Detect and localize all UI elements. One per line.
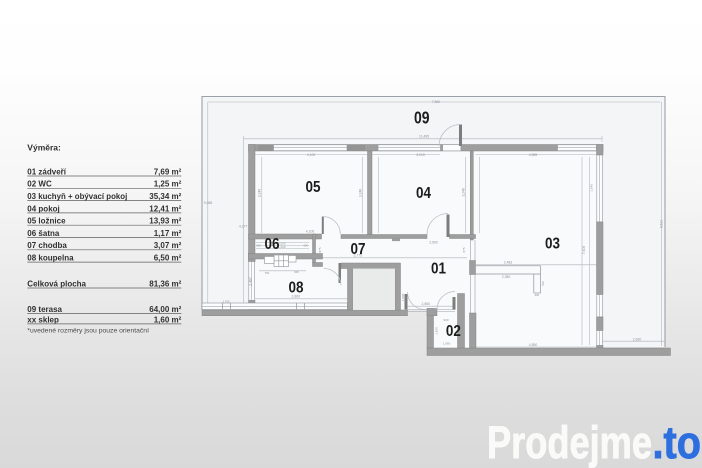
svg-text:2,467: 2,467 [249, 277, 253, 286]
svg-text:13,93 m²: 13,93 m² [149, 217, 181, 226]
svg-text:7,69 m²: 7,69 m² [154, 167, 182, 176]
svg-text:09 terasa: 09 terasa [27, 305, 62, 314]
svg-text:12,41 m²: 12,41 m² [149, 204, 181, 213]
svg-text:2,483: 2,483 [504, 261, 513, 265]
svg-text:1,17 m²: 1,17 m² [154, 229, 182, 238]
svg-text:01: 01 [431, 260, 446, 277]
svg-text:4,855: 4,855 [529, 153, 538, 157]
svg-text:7,560: 7,560 [432, 100, 441, 104]
svg-text:07: 07 [351, 241, 366, 258]
svg-text:9,085: 9,085 [204, 201, 213, 205]
svg-text:3,010: 3,010 [416, 153, 425, 157]
svg-text:02 WC: 02 WC [27, 180, 52, 189]
svg-text:64,00 m²: 64,00 m² [149, 305, 181, 314]
svg-text:2,960: 2,960 [429, 240, 438, 244]
svg-text:4,850: 4,850 [529, 343, 538, 347]
svg-text:875: 875 [318, 247, 322, 252]
svg-text:11,485: 11,485 [419, 135, 429, 139]
svg-text:7,606: 7,606 [582, 246, 586, 255]
svg-text:1,898: 1,898 [401, 293, 405, 301]
svg-text:1,400: 1,400 [435, 327, 439, 335]
svg-text:6,50 m²: 6,50 m² [154, 254, 182, 263]
svg-text:05: 05 [306, 179, 321, 196]
svg-text:600: 600 [303, 243, 308, 247]
svg-text:08: 08 [289, 279, 304, 296]
svg-text:2,630: 2,630 [633, 337, 642, 341]
svg-text:4,277: 4,277 [239, 225, 248, 229]
svg-text:3,246: 3,246 [358, 189, 362, 198]
svg-text:03: 03 [545, 236, 560, 253]
svg-text:81,36 m²: 81,36 m² [149, 279, 181, 288]
svg-text:03 kuchyň + obývací pokoj: 03 kuchyň + obývací pokoj [27, 192, 127, 201]
svg-text:09: 09 [414, 108, 430, 128]
svg-text:*uvedené rozměry jsou pouze or: *uvedené rozměry jsou pouze orientační [27, 328, 149, 335]
svg-text:700: 700 [264, 271, 269, 275]
svg-text:Celková plocha: Celková plocha [27, 279, 86, 288]
svg-text:3,07 m²: 3,07 m² [154, 241, 182, 250]
svg-text:05 ložnice: 05 ložnice [27, 217, 66, 226]
svg-text:06: 06 [265, 236, 280, 253]
svg-text:02: 02 [446, 323, 461, 340]
svg-text:875: 875 [462, 247, 466, 252]
svg-text:Prodejme: Prodejme [487, 417, 652, 468]
svg-text:2,860: 2,860 [422, 302, 431, 306]
svg-text:900: 900 [443, 318, 448, 322]
svg-text:04 pokoj: 04 pokoj [27, 204, 59, 213]
svg-text:2,380: 2,380 [502, 275, 511, 279]
svg-text:07 chodba: 07 chodba [27, 241, 67, 250]
svg-text:35,34 m²: 35,34 m² [149, 192, 181, 201]
svg-text:4,100: 4,100 [306, 229, 315, 233]
svg-text:1,60 m²: 1,60 m² [154, 315, 182, 324]
svg-text:xx sklep: xx sklep [27, 315, 59, 324]
svg-text:3,246: 3,246 [258, 189, 262, 198]
svg-text:500: 500 [256, 243, 261, 247]
svg-text:905: 905 [294, 270, 299, 274]
svg-text:08 koupelna: 08 koupelna [27, 254, 74, 263]
svg-text:4,100: 4,100 [307, 153, 316, 157]
svg-text:1,700: 1,700 [223, 300, 230, 304]
svg-text:06 šatna: 06 šatna [27, 229, 60, 238]
svg-text:1,060: 1,060 [443, 341, 451, 345]
svg-text:500: 500 [541, 281, 545, 286]
svg-text:1,25 m²: 1,25 m² [154, 180, 182, 189]
svg-text:04: 04 [416, 185, 431, 202]
svg-text:01 zádveří: 01 zádveří [27, 167, 66, 176]
svg-text:3,246: 3,246 [461, 188, 465, 197]
svg-text:Výměra:: Výměra: [27, 143, 61, 153]
svg-text:4,610: 4,610 [660, 220, 664, 229]
svg-text:.to: .to [653, 417, 702, 468]
svg-text:600: 600 [535, 293, 540, 297]
svg-text:1,540: 1,540 [590, 184, 594, 192]
